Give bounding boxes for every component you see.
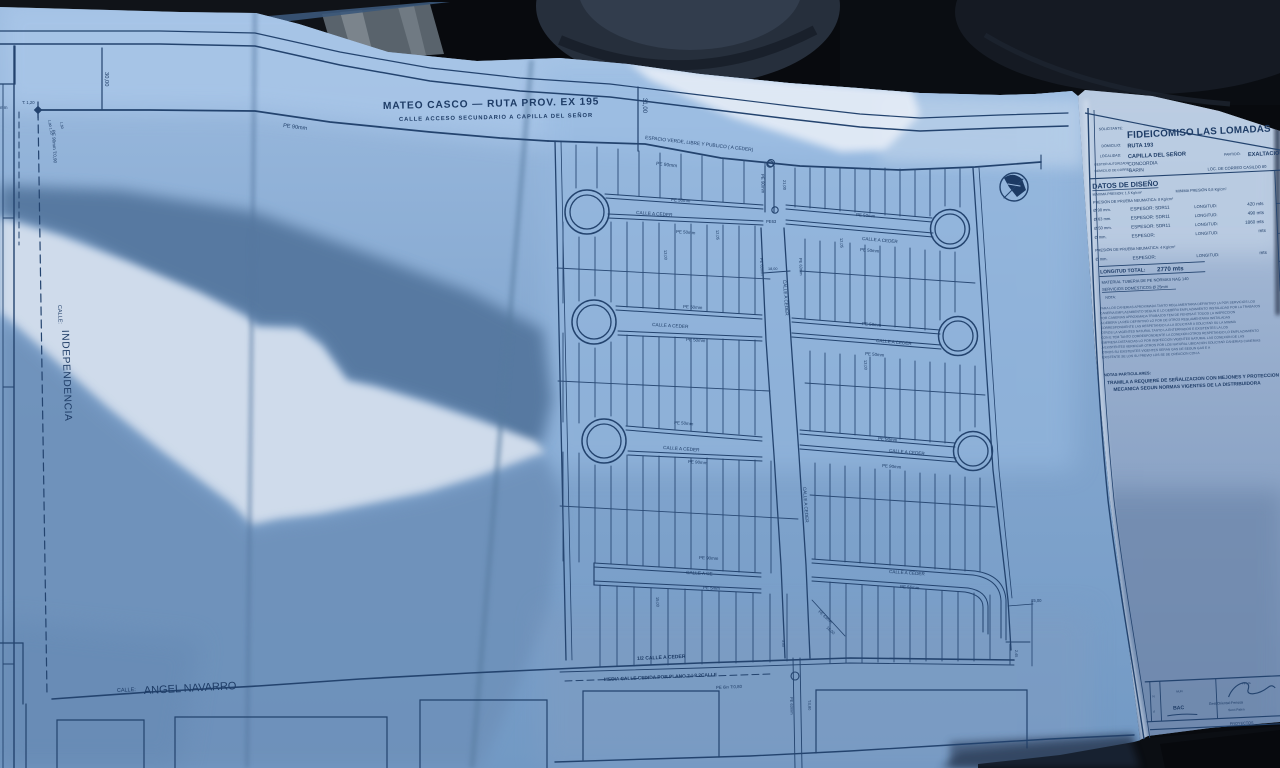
svg-text:mm: mm (0, 105, 8, 110)
svg-text:mts: mts (1259, 250, 1267, 255)
svg-text:N: N (1152, 694, 1154, 698)
svg-text:PE 5mm: PE 5mm (703, 585, 720, 591)
svg-text:PE 90mm: PE 90mm (699, 555, 719, 561)
svg-text:LONGITUD:: LONGITUD: (1195, 230, 1218, 236)
svg-text:Ø 90 mm.: Ø 90 mm. (1093, 207, 1111, 213)
svg-text:18,00: 18,00 (768, 267, 778, 271)
svg-text:CALLE:: CALLE: (56, 305, 63, 325)
svg-text:T: 1,20: T: 1,20 (22, 100, 35, 105)
svg-text:RUTA 193: RUTA 193 (1127, 142, 1153, 149)
svg-text:ESPESOR:: ESPESOR: (1131, 232, 1155, 238)
svg-text:Ø 50 mm.: Ø 50 mm. (1094, 225, 1112, 231)
svg-text:12,05: 12,05 (839, 238, 845, 249)
svg-text:MUN: MUN (1176, 689, 1183, 693)
svg-text:Ø 63 mm.: Ø 63 mm. (1094, 216, 1112, 222)
svg-text:PE 63mm: PE 63mm (789, 697, 795, 715)
svg-text:mts: mts (1258, 228, 1266, 233)
svg-text:Ø mm.: Ø mm. (1094, 234, 1106, 240)
svg-text:12,05: 12,05 (715, 230, 721, 241)
svg-text:490 mts: 490 mts (1248, 210, 1265, 216)
svg-text:ESPESOR:: ESPESOR: (1132, 254, 1156, 260)
svg-text:13,00: 13,00 (863, 360, 869, 371)
svg-text:13,00: 13,00 (663, 250, 669, 261)
svg-text:Ø mm.: Ø mm. (1095, 256, 1107, 262)
svg-text:31,00: 31,00 (641, 98, 647, 114)
svg-text:LONGITUD:: LONGITUD: (1194, 203, 1217, 209)
svg-text:LONGITUD:: LONGITUD: (1196, 252, 1219, 258)
svg-text:2770 mts: 2770 mts (1157, 265, 1184, 273)
svg-text:420 mts: 420 mts (1247, 201, 1264, 207)
svg-text:Servi Paten: Servi Paten (1228, 707, 1245, 712)
svg-text:PARTIDO:: PARTIDO: (1224, 152, 1241, 157)
svg-text:PE 63mm: PE 63mm (798, 258, 804, 276)
svg-text:PE63: PE63 (766, 219, 777, 224)
svg-text:CALLE:: CALLE: (117, 687, 137, 694)
svg-text:15,00: 15,00 (1031, 598, 1042, 603)
svg-text:30,00: 30,00 (103, 72, 109, 87)
svg-text:1860 mts: 1860 mts (1245, 219, 1265, 225)
svg-text:LONGITUD:: LONGITUD: (1195, 221, 1218, 227)
svg-text:15,00: 15,00 (655, 597, 661, 608)
svg-text:LONGITUD:: LONGITUD: (1195, 212, 1218, 218)
svg-text:NOTA:: NOTA: (1105, 295, 1116, 299)
svg-text:GARIN: GARIN (1128, 167, 1144, 174)
svg-text:21,00: 21,00 (782, 180, 787, 191)
svg-text:T:0,80: T:0,80 (807, 700, 811, 710)
svg-text:PE 63mm: PE 63mm (759, 258, 765, 276)
svg-text:BAC: BAC (1173, 705, 1185, 712)
svg-text:3,00: 3,00 (781, 640, 785, 647)
svg-text:2,45: 2,45 (1014, 650, 1018, 658)
